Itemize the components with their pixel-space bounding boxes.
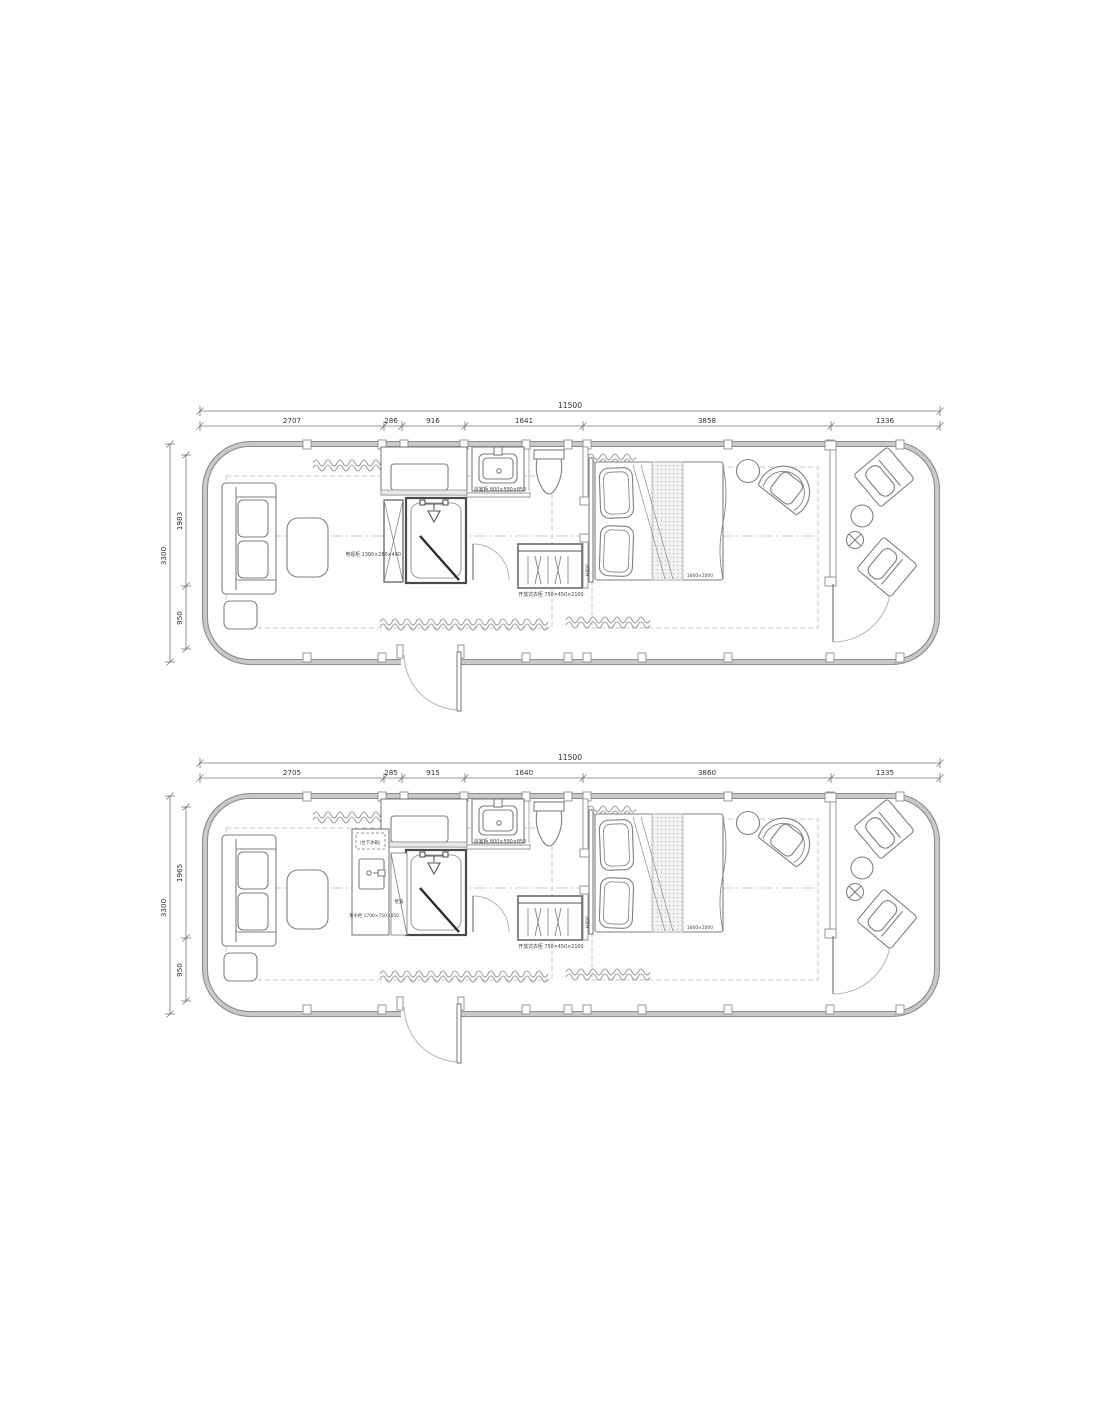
dim-total: 3300 — [159, 898, 168, 917]
vanity-label: 浴室柜 800×500×850 — [474, 486, 526, 493]
dimension-line-top-2: 11500 2705 285 915 1640 3860 1335 — [197, 753, 944, 783]
floor-plan-2: 11500 2705 285 915 1640 3860 1335 3300 1… — [159, 753, 944, 1063]
floor-plan-drawing: 11500 2707 286 916 1641 3858 1336 3300 1… — [0, 0, 1100, 1422]
bed-size-label: 1800×2000 — [687, 925, 713, 931]
wardrobe-label: 开放式衣柜 750×450×2100 — [518, 591, 583, 598]
fridge-label: (台下冰箱) — [360, 839, 381, 846]
dim-total: 11500 — [558, 401, 582, 410]
dim-seg: 1335 — [876, 768, 894, 777]
tea-cabinet-label: 茶水柜 1700×750×850 — [349, 912, 399, 919]
tv-cabinet — [384, 500, 403, 582]
dimension-line-left-1: 3300 1983 950 — [159, 441, 191, 666]
dim-seg: 1640 — [515, 768, 534, 777]
floor-plan-1: 11500 2707 286 916 1641 3858 1336 3300 1… — [159, 401, 944, 711]
dim-seg: 2707 — [283, 416, 301, 425]
dim-seg: 1641 — [515, 416, 533, 425]
wardrobe-label: 开放式衣柜 750×450×2100 — [518, 943, 583, 950]
dim-seg: 950 — [175, 963, 184, 977]
dim-seg: 1983 — [175, 512, 184, 530]
dimension-line-top-1: 11500 2707 286 916 1641 3858 1336 — [197, 401, 944, 431]
dim-seg: 286 — [384, 416, 398, 425]
dim-seg: 950 — [175, 611, 184, 625]
dimension-line-left-2: 3300 1965 950 — [159, 793, 191, 1018]
dim-seg: 3858 — [698, 416, 717, 425]
dim-total: 3300 — [159, 546, 168, 565]
height-note-label: H400 — [585, 916, 591, 928]
dim-seg: 3860 — [698, 768, 717, 777]
dim-seg: 2705 — [283, 768, 301, 777]
wall-niche — [391, 853, 407, 935]
dim-total: 11500 — [558, 753, 582, 762]
dim-seg: 916 — [426, 416, 440, 425]
niche-label: 壁龛 — [395, 898, 404, 905]
height-note-label: H400 — [585, 564, 591, 576]
dim-seg: 1336 — [876, 416, 895, 425]
dim-seg: 285 — [384, 768, 398, 777]
bed-size-label: 1800×2000 — [687, 573, 713, 579]
vanity-label: 浴室柜 800×500×850 — [474, 838, 526, 845]
tv-cabinet-label: 电视柜 1300×280×400 — [345, 551, 401, 558]
dim-seg: 1965 — [175, 864, 184, 882]
dim-seg: 915 — [426, 768, 440, 777]
